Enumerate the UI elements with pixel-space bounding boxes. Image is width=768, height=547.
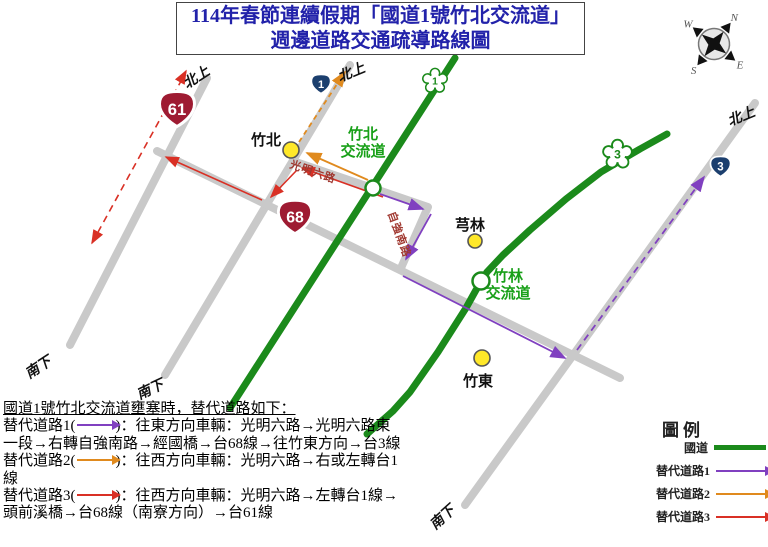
alt-route1-arrow-icon <box>716 470 766 472</box>
label-zhulin-interchange-line1: 竹林 <box>469 269 547 286</box>
compass-east-label: E <box>736 59 744 71</box>
route2-arrow-icon <box>77 459 113 461</box>
traffic-diversion-map: 114年春節連續假期「國道1號竹北交流道」 週邊道路交通疏導路線圖 N E S … <box>0 0 768 547</box>
shield-tai3-number: 3 <box>717 162 723 174</box>
shield-expressway-68: 68 <box>276 198 314 236</box>
route3-name: 替代道路3( <box>3 488 76 504</box>
shield-61-number: 61 <box>168 100 187 119</box>
map-title: 114年春節連續假期「國道1號竹北交流道」 週邊道路交通疏導路線圖 <box>176 2 585 55</box>
shield-provincial-3: 3 <box>709 155 732 178</box>
alt-route3-arrow-icon <box>716 516 766 518</box>
route3-arrow-icon <box>77 494 113 496</box>
compass-south-label: S <box>691 65 697 77</box>
qionglin-town-marker <box>468 234 482 248</box>
notes-route-2: 替代道路2()：往西方向車輛：光明六路→右或左轉台1線 <box>3 453 405 488</box>
alternate-route-notes: 國道1號竹北交流道壅塞時，替代道路如下： 替代道路1()：往東方向車輛：光明六路… <box>3 401 405 523</box>
route1-name: 替代道路1( <box>3 418 76 434</box>
compass-rose-icon: N E S W <box>668 0 764 90</box>
notes-route-3: 替代道路3()：往西方向車輛：光明六路→左轉台1線→頭前溪橋→台68線（南寮方向… <box>3 488 405 523</box>
legend-alt-route1-label: 替代道路1 <box>624 462 716 479</box>
legend-item-alt-route-3: 替代道路3 <box>624 509 766 524</box>
legend-alt-route2-label: 替代道路2 <box>624 485 716 502</box>
shield-expressway-61: 61 <box>157 89 197 129</box>
label-qionglin-town: 芎林 <box>455 214 485 235</box>
map-title-line1: 114年春節連續假期「國道1號竹北交流道」 <box>191 4 570 29</box>
zhubei-town-marker <box>283 142 299 158</box>
shield-68-number: 68 <box>286 210 304 227</box>
label-zhubei-interchange: 竹北 交流道 <box>327 127 399 161</box>
label-zhulin-interchange-line2: 交流道 <box>469 286 547 303</box>
zhudong-town-marker <box>474 350 490 366</box>
zhubei-interchange-marker <box>366 181 381 196</box>
compass-north-label: N <box>730 12 739 24</box>
national-highway-line-icon <box>714 445 766 450</box>
compass-west-label: W <box>683 19 693 31</box>
label-zhudong-town: 竹東 <box>463 370 493 391</box>
legend-title: 圖例 <box>662 416 704 441</box>
shield-national-1: 1 <box>421 67 449 95</box>
shield-national-3: 3 <box>601 138 634 171</box>
shield-national1-number: 1 <box>432 77 438 88</box>
legend-item-alt-route-2: 替代道路2 <box>624 486 766 501</box>
alt-route3-arrow-south <box>92 234 97 243</box>
route2-name: 替代道路2( <box>3 453 76 469</box>
legend-item-national-highway: 國道 <box>624 440 766 455</box>
map-title-line2: 週邊道路交通疏導路線圖 <box>271 29 491 54</box>
notes-route-1: 替代道路1()：往東方向車輛：光明六路→光明六路東一段→右轉自強南路→經國橋→台… <box>3 418 405 453</box>
route1-arrow-icon <box>77 424 113 426</box>
shield-tai1-number: 1 <box>318 79 324 91</box>
label-zhulin-interchange: 竹林 交流道 <box>469 269 547 303</box>
alt-route3-tai68-west <box>166 157 262 200</box>
shield-provincial-1: 1 <box>310 73 332 95</box>
notes-heading: 國道1號竹北交流道壅塞時，替代道路如下： <box>3 401 405 418</box>
legend-alt-route3-label: 替代道路3 <box>624 508 716 525</box>
label-zhubei-town: 竹北 <box>251 129 281 150</box>
legend-item-alt-route-1: 替代道路1 <box>624 463 766 478</box>
legend-national-highway-label: 國道 <box>624 439 714 456</box>
alt-route2-arrow-icon <box>716 493 766 495</box>
shield-national3-number: 3 <box>614 148 621 162</box>
label-zhubei-interchange-line1: 竹北 <box>327 127 399 144</box>
label-zhubei-interchange-line2: 交流道 <box>327 144 399 161</box>
